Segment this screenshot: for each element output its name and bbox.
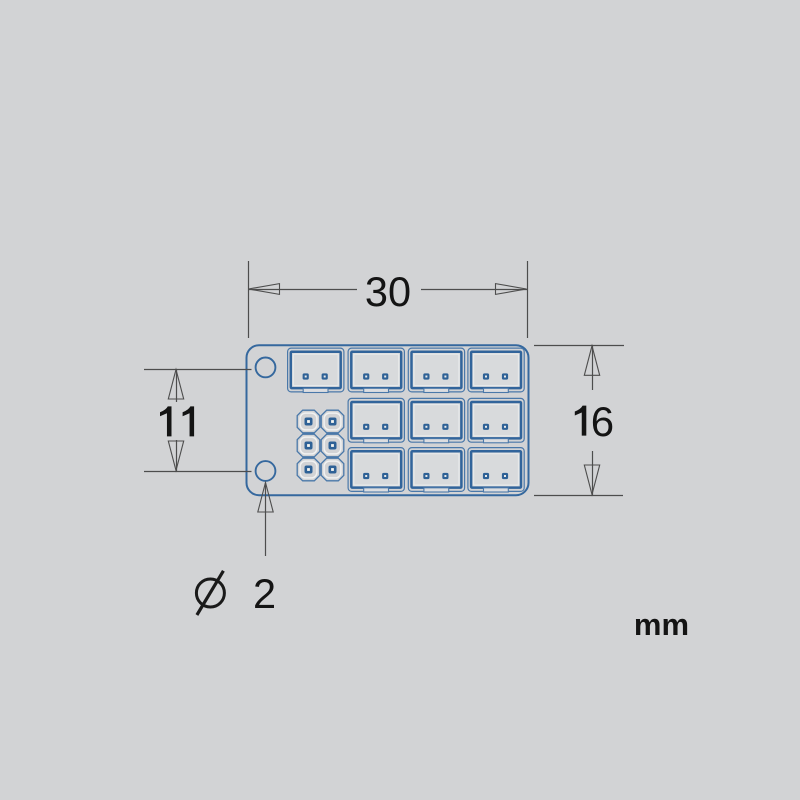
svg-text:mm: mm [634,607,689,642]
svg-text:6: 6 [591,398,614,445]
svg-text:30: 30 [365,268,411,315]
svg-text:2: 2 [253,570,276,617]
